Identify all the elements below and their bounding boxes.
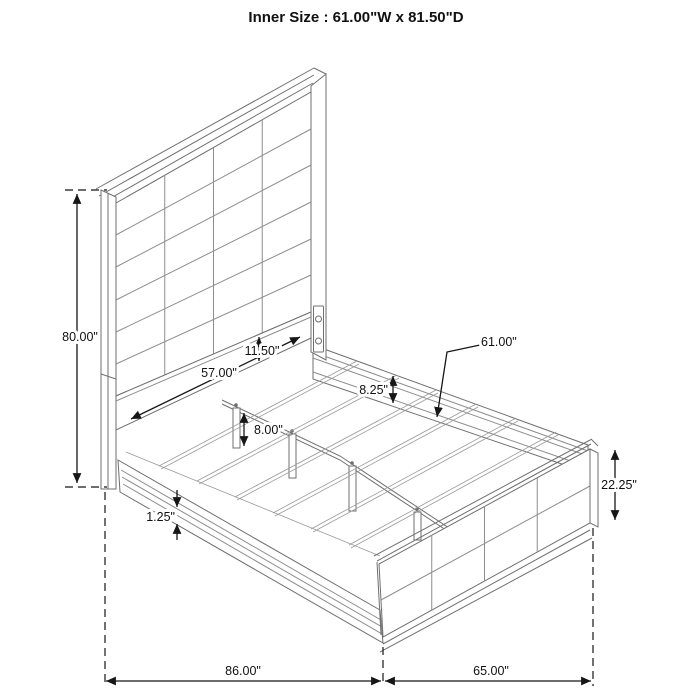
dimension-label-800: 8.00"	[254, 423, 283, 437]
dimension-overall-depth: 86.00"	[106, 664, 381, 681]
diagram-title: Inner Size : 61.00"W x 81.50"D	[248, 9, 463, 26]
footboard-right-return	[590, 440, 598, 527]
dimension-label-125: 1.25"	[146, 510, 175, 524]
dimension-label-57: 57.00"	[201, 366, 237, 380]
dimension-label-86: 86.00"	[225, 664, 261, 678]
headboard-left-post	[101, 190, 116, 489]
diagram-canvas: Inner Size : 61.00"W x 81.50"D	[0, 0, 700, 700]
bed-dimension-diagram: Inner Size : 61.00"W x 81.50"D	[0, 0, 700, 700]
dimension-label-65: 65.00"	[473, 664, 509, 678]
screw-dot	[350, 461, 354, 465]
dimension-label-825: 8.25"	[359, 383, 388, 397]
screw-dot	[234, 403, 238, 407]
side-rail-near	[118, 460, 383, 643]
dimension-overall-width: 65.00"	[385, 664, 591, 681]
headboard-right-post	[311, 74, 326, 360]
dimension-headboard-height: 80.00"	[62, 190, 107, 487]
dimension-label-1150: 11.50"	[245, 344, 280, 358]
footboard	[374, 439, 598, 652]
dimension-label-61: 61.00"	[481, 335, 517, 349]
dimension-label-2225: 22.25"	[601, 478, 637, 492]
dimension-label-80: 80.00"	[62, 330, 98, 344]
headboard	[96, 68, 326, 489]
dimension-footboard-height: 22.25"	[601, 450, 637, 520]
